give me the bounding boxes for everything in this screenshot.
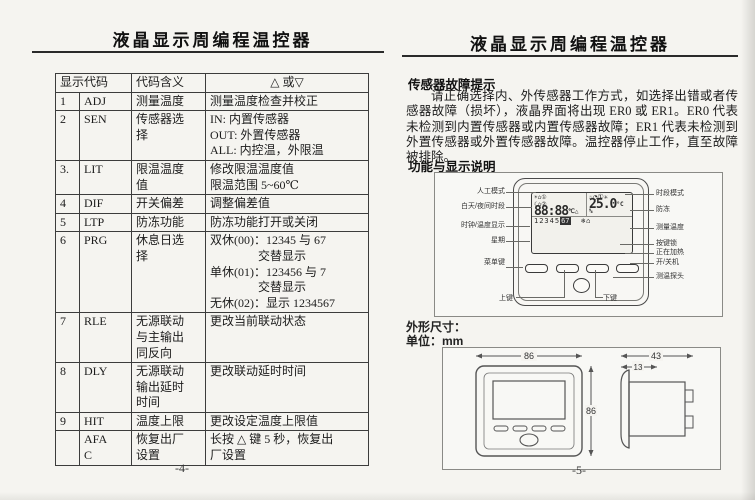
callout-line [625,194,654,195]
callout-line [506,241,530,242]
table-row: 3. LIT 限温温度 值 修改限温温度值 限温范围 5~60℃ [56,160,369,194]
power-button-drawing [616,264,639,273]
cell-action: 长按 △ 键 5 秒，恢复出 厂设置 [206,431,369,465]
page-number-right: -5- [572,463,586,478]
dim-side-front: 13 [634,363,643,372]
cell-action: 测量温度检查并校正 [206,92,369,111]
cell-code: SEN [80,111,132,161]
table-row: AFA C 恢复出厂 设置 长按 △ 键 5 秒，恢复出 厂设置 [56,431,369,465]
cell-action: 双休(00)：12345 与 67 交替显示 单休(01)：123456 与 7… [206,232,369,313]
cell-meaning: 测量温度 [132,92,206,111]
cell-meaning: 无源联动 与主输出 同反向 [132,313,206,363]
dim-side-depth: 43 [651,351,661,361]
lcd-temp-unit: °C [616,201,623,208]
cell-meaning: 恢复出厂 设置 [132,431,206,465]
label-period-mode: 时段模式 [656,190,684,198]
cell-num: 3. [56,160,80,194]
cell-meaning: 温度上限 [132,412,206,431]
cell-meaning: 无源联动 输出延时 时间 [132,363,206,413]
label-heating: 正在加热 [656,249,684,257]
label-down-key: 下键 [603,295,617,303]
cell-meaning: 限温温度 值 [132,160,206,194]
side-view-faceplate [621,370,629,448]
callout-line [595,297,603,298]
title-underline [402,55,738,57]
lcd-temp-value: 25.0 [589,197,616,212]
table-row: 6 PRG 休息日选 择 双休(00)：12345 与 67 交替显示 单休(0… [56,232,369,313]
sensor-fault-text: 请正确选择内、外传感器工作方式，如选择出错或者传感器故障（损坏），液晶界面将出现… [406,89,738,165]
cell-code: DIF [80,195,132,214]
cell-meaning: 休息日选 择 [132,232,206,313]
cell-action: 更改当前联动状态 [206,313,369,363]
cell-num: 1 [56,92,80,111]
label-antifreeze: 防冻 [656,206,670,214]
callout-line [613,277,654,278]
callout-line [630,263,654,264]
cell-num [56,431,80,465]
cell-num: 9 [56,412,80,431]
col-code-meaning: 代码含义 [132,74,206,93]
label-measured-temp: 测量温度 [656,224,684,232]
cell-code: LTP [80,213,132,232]
callout-line [506,207,532,208]
callout-line [506,226,530,227]
dim-front-width: 86 [524,351,534,361]
label-week: 星期 [441,237,505,245]
cell-action: 修改限温温度值 限温范围 5~60℃ [206,160,369,194]
period1-icon: ① [541,194,546,201]
callout-line [620,244,654,245]
label-day-night: 白天/夜间时段 [441,203,505,211]
col-up-down: △ 或▽ [206,74,369,93]
cell-action: 调整偏差值 [206,195,369,214]
lcd-weekend-highlight: 67 [560,217,570,225]
label-manual-mode: 人工模式 [441,188,505,196]
callout-line [564,270,565,298]
cell-code: DLY [80,363,132,413]
cell-num: 2 [56,111,80,161]
cell-code: RLE [80,313,132,363]
lcd-display: ☀⌂① ☾⌂② 88:88℃△ ♨◔①✳ 25.0°C% 1234567 ❄⌂ [531,192,633,254]
up-button-drawing [556,264,579,273]
cell-num: 4 [56,195,80,214]
table-row: 9 HIT 温度上限 更改设定温度上限值 [56,412,369,431]
front-view-outline [476,366,582,456]
page-number-left: -4- [175,461,189,476]
page-title: 液晶显示周编程温控器 [405,30,735,55]
table-row: 2 SEN 传感器选 择 IN: 内置传感器 OUT: 外置传感器 ALL: 内… [56,111,369,161]
dimension-drawing: 86 86 43 13 [442,347,721,470]
thermostat-front-drawing: ☀⌂① ☾⌂② 88:88℃△ ♨◔①✳ 25.0°C% 1234567 ❄⌂ [513,178,649,306]
lcd-percent: % [589,208,593,215]
page-left: 液晶显示周编程温控器 显示代码 代码含义 △ 或▽ 1 ADJ 测量温度 测量温… [0,0,400,500]
menu-button-drawing [525,264,548,273]
table-row: 4 DIF 开关偏差 调整偏差值 [56,195,369,214]
cell-action: 更改设定温度上限值 [206,412,369,431]
cell-meaning: 防冻功能 [132,213,206,232]
probe-knob-drawing [573,278,590,293]
scanned-manual-spread: 液晶显示周编程温控器 显示代码 代码含义 △ 或▽ 1 ADJ 测量温度 测量温… [0,0,755,500]
page-right: 液晶显示周编程温控器 传感器故障提示 请正确选择内、外传感器工作方式，如选择出错… [400,0,755,500]
callout-line [630,210,654,211]
cell-num: 5 [56,213,80,232]
lcd-weekdays: 12345 [534,217,560,225]
label-key-lock: 按键锁 [656,240,677,248]
label-temp-probe: 测温探头 [656,273,684,281]
callout-line [625,253,654,254]
label-clock-temp: 时钟/温度显示 [441,222,505,230]
table-header-row: 显示代码 代码含义 △ 或▽ [56,74,369,93]
code-table: 显示代码 代码含义 △ 或▽ 1 ADJ 测量温度 测量温度检查并校正 2 SE… [55,73,369,466]
cell-num: 8 [56,363,80,413]
cell-meaning: 传感器选 择 [132,111,206,161]
page-title: 液晶显示周编程温控器 [40,26,385,51]
front-view-screen [493,381,565,419]
function-diagram: ☀⌂① ☾⌂② 88:88℃△ ♨◔①✳ 25.0°C% 1234567 ❄⌂ [434,172,723,317]
callout-line [630,228,654,229]
title-underline [32,51,384,53]
cell-action: 更改联动延时时间 [206,363,369,413]
cell-num: 7 [56,313,80,363]
callout-line [516,297,564,298]
cell-code: AFA C [80,431,132,465]
cell-code: HIT [80,412,132,431]
callout-line [506,267,523,268]
side-view-body [629,382,685,436]
col-display-code: 显示代码 [56,74,132,93]
cell-action: 防冻功能打开或关闭 [206,213,369,232]
cell-action: IN: 内置传感器 OUT: 外置传感器 ALL: 内控温，外限温 [206,111,369,161]
table-row: 7 RLE 无源联动 与主输出 同反向 更改当前联动状态 [56,313,369,363]
cell-code: LIT [80,160,132,194]
table-row: 1 ADJ 测量温度 测量温度检查并校正 [56,92,369,111]
table-row: 8 DLY 无源联动 输出延时 时间 更改联动延时时间 [56,363,369,413]
down-button-drawing [586,264,609,273]
cell-code: PRG [80,232,132,313]
callout-line [595,270,596,298]
dimension-svg: 86 86 43 13 [443,348,720,469]
lock-icon: ⌂ [586,217,591,225]
lcd-time-unit: ℃△ [568,208,578,215]
cell-code: ADJ [80,92,132,111]
label-menu-key: 菜单键 [441,259,505,267]
label-power-key: 开/关机 [656,259,679,267]
dim-front-height: 86 [586,406,596,416]
cell-num: 6 [56,232,80,313]
cell-meaning: 开关偏差 [132,195,206,214]
callout-line [506,192,536,193]
label-up-key: 上键 [499,295,513,303]
table-row: 5 LTP 防冻功能 防冻功能打开或关闭 [56,213,369,232]
